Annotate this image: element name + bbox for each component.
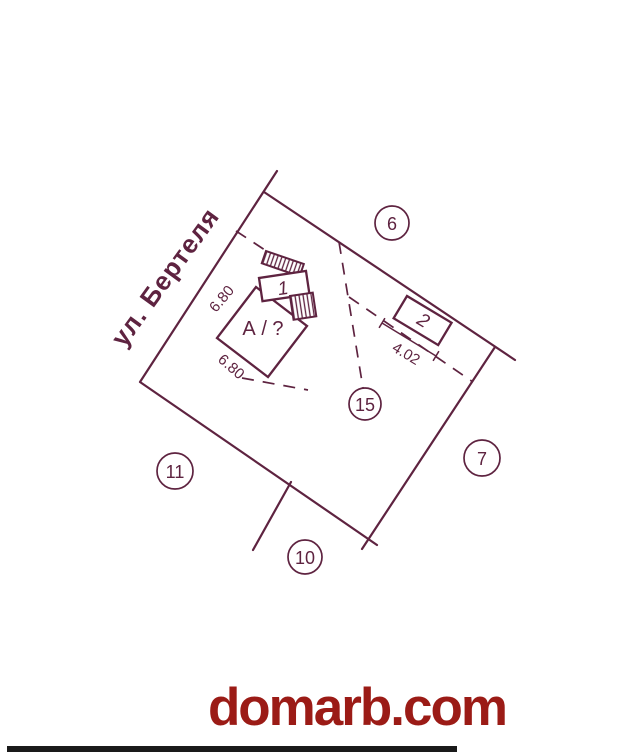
- svg-text:10: 10: [295, 548, 315, 568]
- svg-text:15: 15: [355, 395, 375, 415]
- hatched-annex-small: [290, 293, 316, 320]
- svg-text:6: 6: [387, 214, 397, 234]
- svg-text:7: 7: [477, 449, 487, 469]
- parcel-marker-11: 11: [157, 453, 193, 489]
- parcel-marker-7: 7: [464, 440, 500, 476]
- building-label: А / ?: [242, 318, 283, 340]
- parcel-marker-10: 10: [288, 540, 322, 574]
- cadastral-plan-drawing: ул. Бертеля А / ? 1 2 6.80 6.80 4.02 6 7…: [0, 0, 630, 752]
- access-spur-line: [253, 482, 291, 550]
- dimension-side-upper: 6.80: [206, 282, 238, 315]
- parcel-marker-6: 6: [375, 206, 409, 240]
- svg-text:11: 11: [166, 462, 185, 482]
- scan-artifact-bar: [7, 746, 457, 752]
- site-watermark: domarb.com: [208, 677, 506, 738]
- plot-plan-page: ул. Бертеля А / ? 1 2 6.80 6.80 4.02 6 7…: [0, 0, 630, 752]
- dimension-front: 4.02: [389, 339, 423, 369]
- parcel-marker-15: 15: [349, 388, 381, 420]
